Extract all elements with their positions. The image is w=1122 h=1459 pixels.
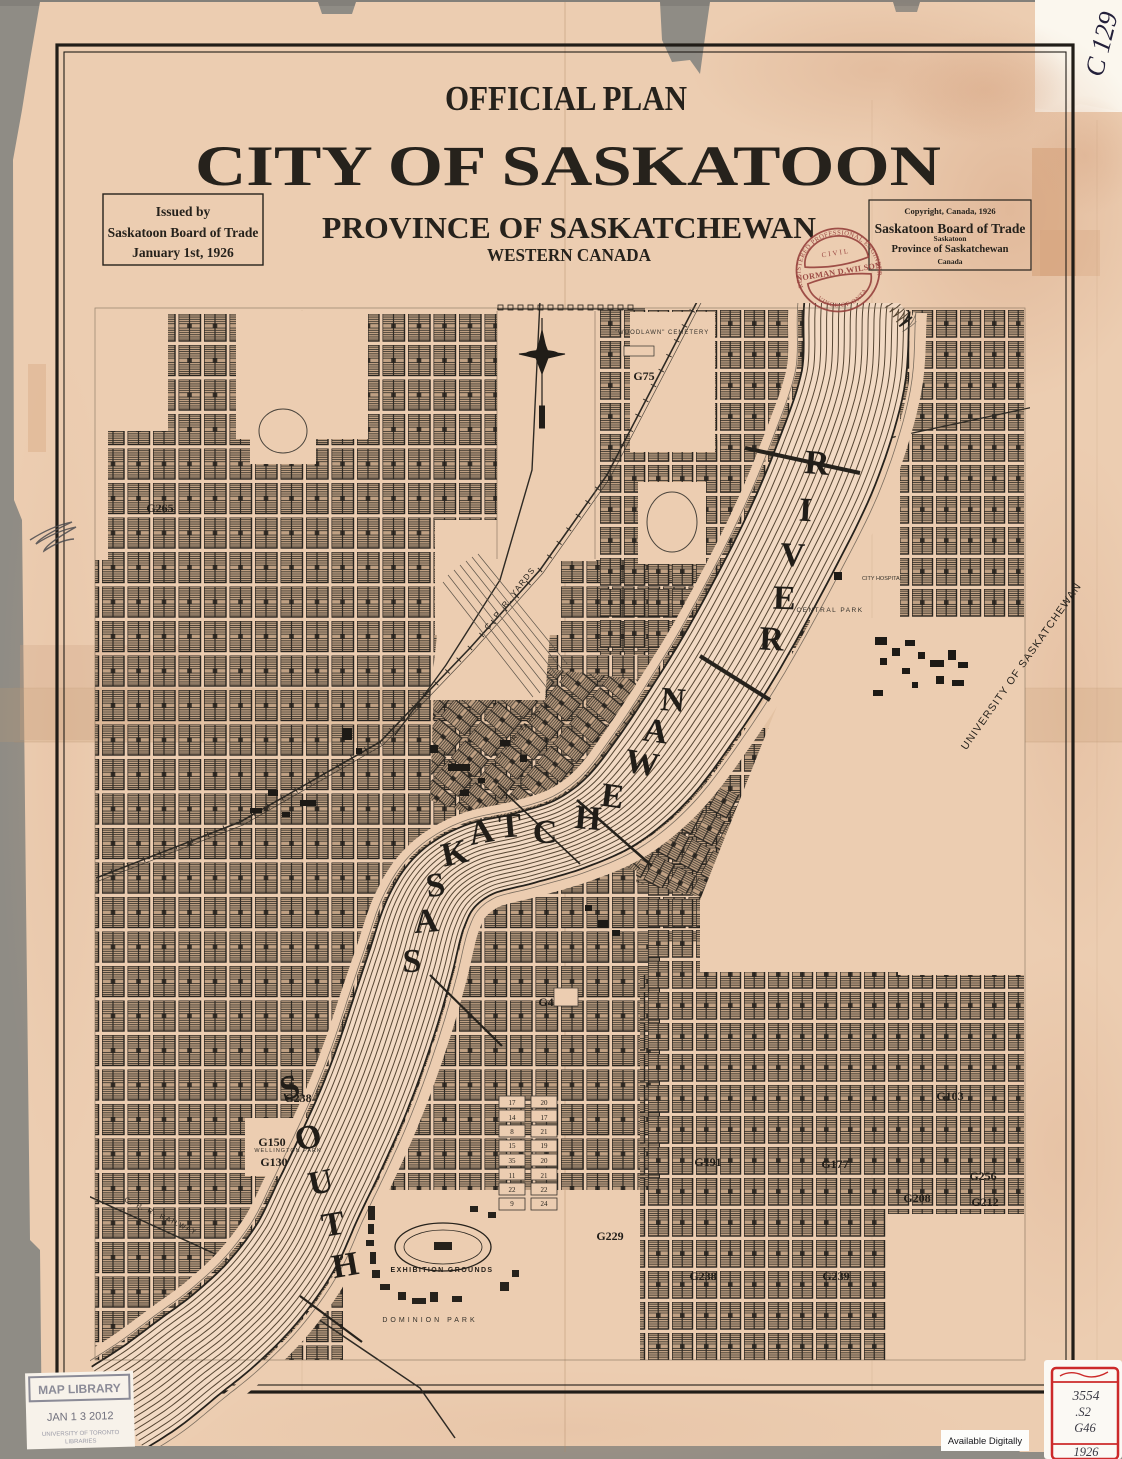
- svg-text:T: T: [497, 807, 523, 846]
- svg-text:I: I: [798, 492, 813, 530]
- svg-text:24: 24: [541, 1200, 549, 1208]
- svg-text:Saskatoon: Saskatoon: [934, 234, 968, 243]
- svg-text:20: 20: [541, 1099, 549, 1107]
- svg-text:G130: G130: [260, 1155, 287, 1169]
- svg-text:19: 19: [541, 1142, 549, 1150]
- svg-text:17: 17: [509, 1099, 517, 1107]
- svg-text:G191: G191: [694, 1155, 721, 1169]
- svg-text:PROVINCE OF SASKATCHEWAN: PROVINCE OF SASKATCHEWAN: [322, 210, 816, 245]
- svg-text:9: 9: [510, 1200, 514, 1208]
- svg-text:11: 11: [509, 1172, 516, 1180]
- svg-text:S: S: [403, 943, 422, 980]
- svg-text:1926: 1926: [1074, 1445, 1100, 1459]
- svg-text:.S2: .S2: [1075, 1405, 1091, 1419]
- svg-text:G46: G46: [1074, 1421, 1096, 1435]
- svg-text:MAP LIBRARY: MAP LIBRARY: [38, 1381, 121, 1397]
- svg-text:G75: G75: [633, 369, 654, 383]
- svg-text:Available Digitally: Available Digitally: [948, 1436, 1023, 1447]
- svg-text:G265: G265: [146, 501, 173, 515]
- svg-text:G177: G177: [821, 1157, 848, 1171]
- svg-text:DOMINION PARK: DOMINION PARK: [382, 1317, 477, 1324]
- svg-text:EXHIBITION GROUNDS: EXHIBITION GROUNDS: [391, 1267, 494, 1274]
- svg-text:C: C: [533, 814, 558, 851]
- svg-text:Issued by: Issued by: [156, 204, 211, 219]
- svg-text:OFFICIAL PLAN: OFFICIAL PLAN: [445, 79, 687, 118]
- svg-text:G256: G256: [969, 1169, 996, 1183]
- svg-text:R: R: [803, 444, 831, 483]
- svg-text:CITY OF SASKATOON: CITY OF SASKATOON: [195, 135, 941, 198]
- svg-text:Copyright, Canada, 1926: Copyright, Canada, 1926: [904, 206, 995, 216]
- svg-text:G103: G103: [936, 1089, 963, 1103]
- svg-text:8: 8: [510, 1128, 514, 1136]
- svg-text:15: 15: [509, 1142, 517, 1150]
- svg-text:17: 17: [541, 1114, 549, 1122]
- svg-text:CENTRAL PARK: CENTRAL PARK: [796, 607, 863, 614]
- svg-text:G238: G238: [284, 1091, 311, 1105]
- svg-text:V: V: [779, 536, 806, 574]
- svg-text:3554: 3554: [1072, 1388, 1100, 1403]
- svg-text:H: H: [573, 799, 603, 838]
- svg-text:JAN 1 3 2012: JAN 1 3 2012: [47, 1410, 114, 1424]
- svg-text:Saskatoon Board of Trade: Saskatoon Board of Trade: [108, 225, 259, 240]
- svg-text:LIBRARIES: LIBRARIES: [65, 1439, 97, 1446]
- svg-text:CITY HOSPITAL: CITY HOSPITAL: [862, 576, 903, 582]
- svg-text:21: 21: [541, 1128, 549, 1136]
- svg-text:January 1st, 1926: January 1st, 1926: [132, 245, 234, 260]
- svg-text:G150: G150: [258, 1135, 285, 1149]
- svg-text:G229: G229: [596, 1229, 623, 1243]
- svg-text:N: N: [659, 681, 687, 720]
- svg-text:G239: G239: [822, 1269, 849, 1283]
- svg-text:R: R: [758, 620, 785, 658]
- svg-text:A: A: [412, 902, 440, 941]
- svg-text:20: 20: [541, 1157, 549, 1165]
- svg-text:G212: G212: [971, 1195, 998, 1209]
- svg-text:35: 35: [509, 1157, 517, 1165]
- svg-text:Canada: Canada: [937, 257, 962, 266]
- svg-text:E: E: [772, 580, 796, 618]
- svg-text:22: 22: [509, 1186, 517, 1194]
- svg-text:14: 14: [509, 1114, 517, 1122]
- svg-text:G208: G208: [903, 1191, 930, 1205]
- svg-text:"WOODLAWN" CEMETERY: "WOODLAWN" CEMETERY: [615, 330, 710, 336]
- svg-text:22: 22: [541, 1186, 549, 1194]
- svg-text:G238: G238: [689, 1269, 716, 1283]
- svg-text:WESTERN CANADA: WESTERN CANADA: [487, 245, 651, 265]
- svg-text:21: 21: [541, 1172, 549, 1180]
- svg-text:Province of Saskatchewan: Province of Saskatchewan: [891, 244, 1008, 255]
